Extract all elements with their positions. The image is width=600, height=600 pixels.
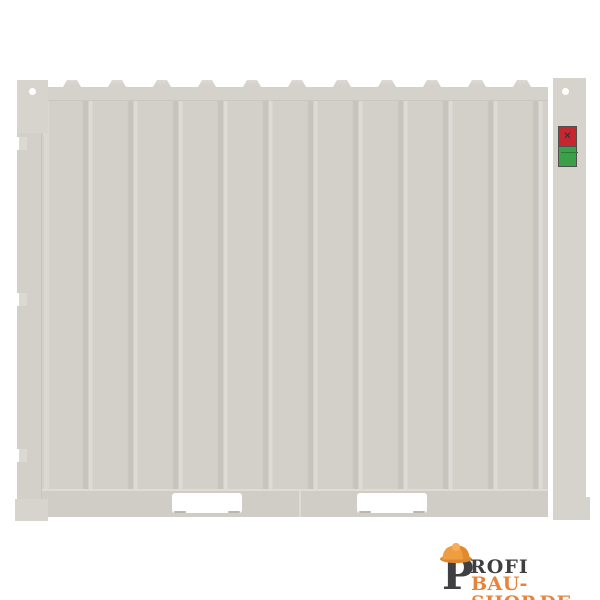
pocket-shadow	[413, 511, 425, 513]
sticker-text-line	[561, 152, 578, 153]
hinge-pin	[19, 449, 27, 462]
logo-text-bau-shop: BAU-SHOP.DE	[471, 575, 598, 600]
lifting-hole	[29, 88, 36, 95]
container-top-rail	[42, 87, 548, 101]
product-image: ✕ P ROFI BAU-SHOP.DE	[0, 0, 600, 600]
door-hinge	[12, 293, 27, 306]
container-roof	[42, 80, 548, 87]
hard-hat-icon	[439, 542, 473, 564]
shop-logo: P ROFI BAU-SHOP.DE	[438, 540, 598, 596]
roof-bump	[423, 80, 441, 87]
pocket-shadow	[174, 511, 186, 513]
roof-bump	[108, 80, 126, 87]
door-hinge	[12, 137, 27, 150]
forklift-pocket-right	[357, 493, 427, 513]
roof-bump	[333, 80, 351, 87]
roof-bump	[153, 80, 171, 87]
pocket-shadow	[359, 511, 371, 513]
sticker-emblem-icon: ✕	[563, 132, 571, 142]
hinge-notch	[12, 137, 19, 150]
sticker-red-panel: ✕	[559, 127, 576, 146]
pocket-shadow	[228, 511, 240, 513]
left-top-bracket	[17, 80, 48, 133]
hinge-pin	[19, 137, 27, 150]
hinge-notch	[12, 449, 19, 462]
roof-bump	[378, 80, 396, 87]
roof-bump	[468, 80, 486, 87]
hinge-notch	[12, 293, 19, 306]
roof-bump	[513, 80, 531, 87]
hazard-sticker: ✕	[558, 126, 577, 167]
sticker-green-panel	[559, 147, 576, 166]
lifting-hole	[562, 88, 569, 95]
right-post-foot	[584, 497, 590, 520]
door-hinge	[12, 449, 27, 462]
roof-bump	[243, 80, 261, 87]
roof-bump	[198, 80, 216, 87]
container-wall-panels	[42, 101, 548, 489]
hinge-pin	[19, 293, 27, 306]
left-bottom-bracket	[15, 499, 48, 521]
roof-bump	[288, 80, 306, 87]
wall-edge-highlight	[44, 101, 49, 489]
container-bottom-rail	[42, 489, 548, 517]
roof-bump	[63, 80, 81, 87]
forklift-pocket-left	[172, 493, 242, 513]
bottom-rail-seam	[299, 491, 301, 517]
